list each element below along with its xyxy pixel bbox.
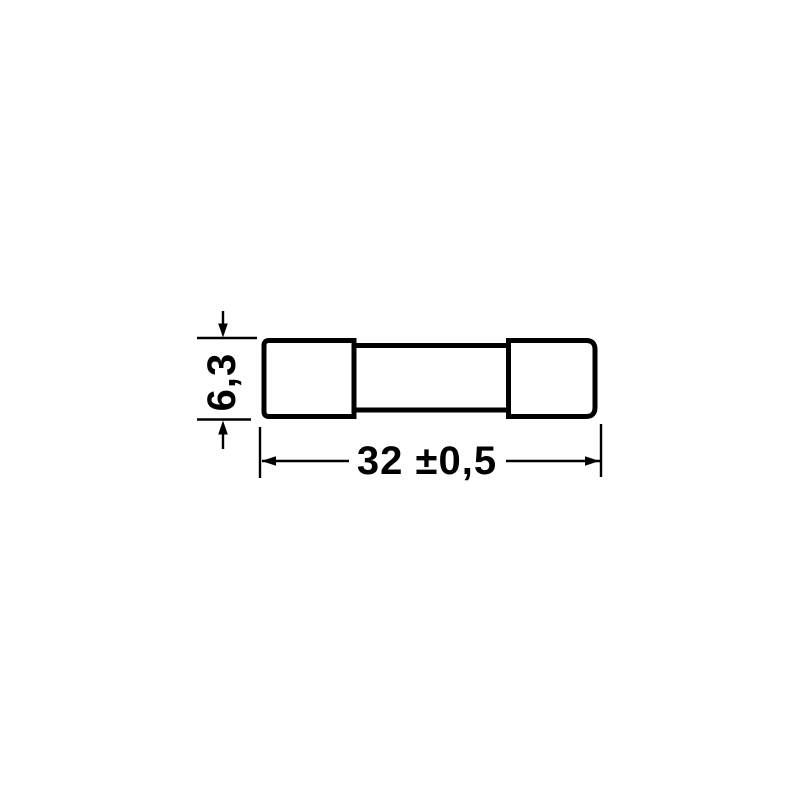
drawing-canvas: 6,3 32 ±0,5 [0,0,800,800]
fuse-right-cap [509,341,596,417]
length-dim-label: 32 ±0,5 [357,439,497,483]
fuse-left-cap [264,341,354,417]
drawing-background [0,0,800,800]
height-dim-label: 6,3 [200,353,244,412]
fuse-dimension-drawing: 6,3 32 ±0,5 [0,0,800,800]
